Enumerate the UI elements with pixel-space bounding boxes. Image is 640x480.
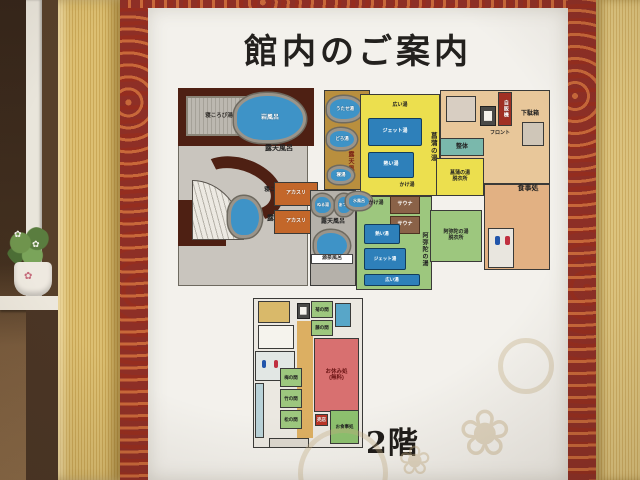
stairs-1f (446, 96, 476, 122)
restroom-2f-male-icon (262, 360, 266, 368)
frame-floral-band-left (120, 8, 148, 480)
elevator-1f (480, 106, 496, 126)
kakeyu-label-shobu: かけ湯 (390, 181, 424, 190)
pot-flower-icon: ✿ (24, 272, 32, 282)
frame-floral-band-right (566, 0, 596, 480)
shoe-lockers (522, 122, 544, 146)
guest-room-5: 松の間 (280, 410, 302, 429)
seitai-room: 整体 (440, 138, 484, 156)
photo-of-floor-guide-sign: ✿ ✿ ✿ 館内のご案内 1階 寝ころび湯岩風呂露天風呂寝ころび湯露天風呂アカス… (0, 0, 640, 480)
guest-room-2: 藤の間 (311, 320, 333, 336)
bath-room-2f (335, 303, 351, 327)
rock-pool-iwaburo: 岩風呂 (234, 93, 306, 143)
atsui-yu-shobu: 熱い湯 (368, 152, 414, 178)
atsui-yu-amida: 熱い湯 (364, 224, 400, 244)
vending-box: 自販機 (498, 92, 512, 126)
flourish-ring (498, 338, 554, 394)
hiroi-yu-amida: 広い湯 (364, 274, 420, 286)
flourish-flower-icon: ❀ (458, 396, 512, 471)
stairs-2f (258, 301, 290, 323)
guest-room-4: 竹の間 (280, 389, 302, 408)
amida-hall-label: 阿弥陀の湯 (418, 220, 429, 278)
outdoor-bath-label-1: 露天風呂 (254, 144, 304, 154)
nuru-yu-pool: ぬる湯 (312, 194, 334, 216)
front-desk-label: フロント (482, 130, 518, 138)
restroom-2f-female-icon (274, 360, 278, 368)
guest-room-1: 菊の間 (311, 301, 333, 318)
flower-pot: ✿ (14, 262, 52, 296)
rest-area-2f: お休み処 (無料) (314, 338, 359, 412)
sauna-1: サウナ (390, 196, 420, 214)
restroom-female-icon (505, 236, 510, 245)
getabako-label: 下駄箱 (510, 110, 550, 119)
wash-area-2f (255, 383, 264, 438)
dining-hall-label: 食事処 (506, 184, 550, 195)
gold-frame-right (596, 0, 640, 480)
shop-2f: 売店 (315, 414, 328, 426)
utase-yu-pool: うたせ湯 (327, 96, 363, 122)
gensen-pool-badge: 源泉風呂 (311, 254, 353, 264)
window-sill (0, 296, 58, 310)
wall-below-sill (26, 310, 58, 480)
lobby-2f (258, 325, 294, 349)
flower-icon: ✿ (14, 230, 22, 239)
elevator-2f (297, 303, 310, 319)
gold-pillar (58, 0, 120, 480)
jet-bath-amida: ジェット湯 (364, 248, 406, 270)
amida-dressing-room: 阿弥陀の湯 脱衣所 (430, 210, 482, 262)
hiroi-yu-label-shobu: 広い湯 (372, 101, 428, 110)
restrooms-1f (488, 228, 514, 268)
floor-guide-poster: 館内のご案内 1階 寝ころび湯岩風呂露天風呂寝ころび湯露天風呂アカスリアカスリう… (148, 8, 568, 480)
flower-icon: ✿ (32, 240, 40, 249)
restroom-male-icon (495, 236, 500, 245)
jet-bath-shobu: ジェット湯 (368, 118, 422, 146)
poster-title: 館内のご案内 (148, 24, 568, 73)
outdoor-bath-label-4: 露天風呂 (312, 218, 354, 227)
shobu-dressing-room: 菖蒲の湯 脱衣所 (436, 158, 484, 196)
guest-room-3: 梅の間 (280, 368, 302, 387)
entrance-steps-2f (269, 438, 309, 448)
floor1-plan: 1階 寝ころび湯岩風呂露天風呂寝ころび湯露天風呂アカスリアカスリうたせ湯どろ湯露… (178, 88, 550, 295)
ne-yu-pool: 寝湯 (328, 166, 354, 184)
kakeyu-label-amida: かけ湯 (362, 200, 390, 208)
